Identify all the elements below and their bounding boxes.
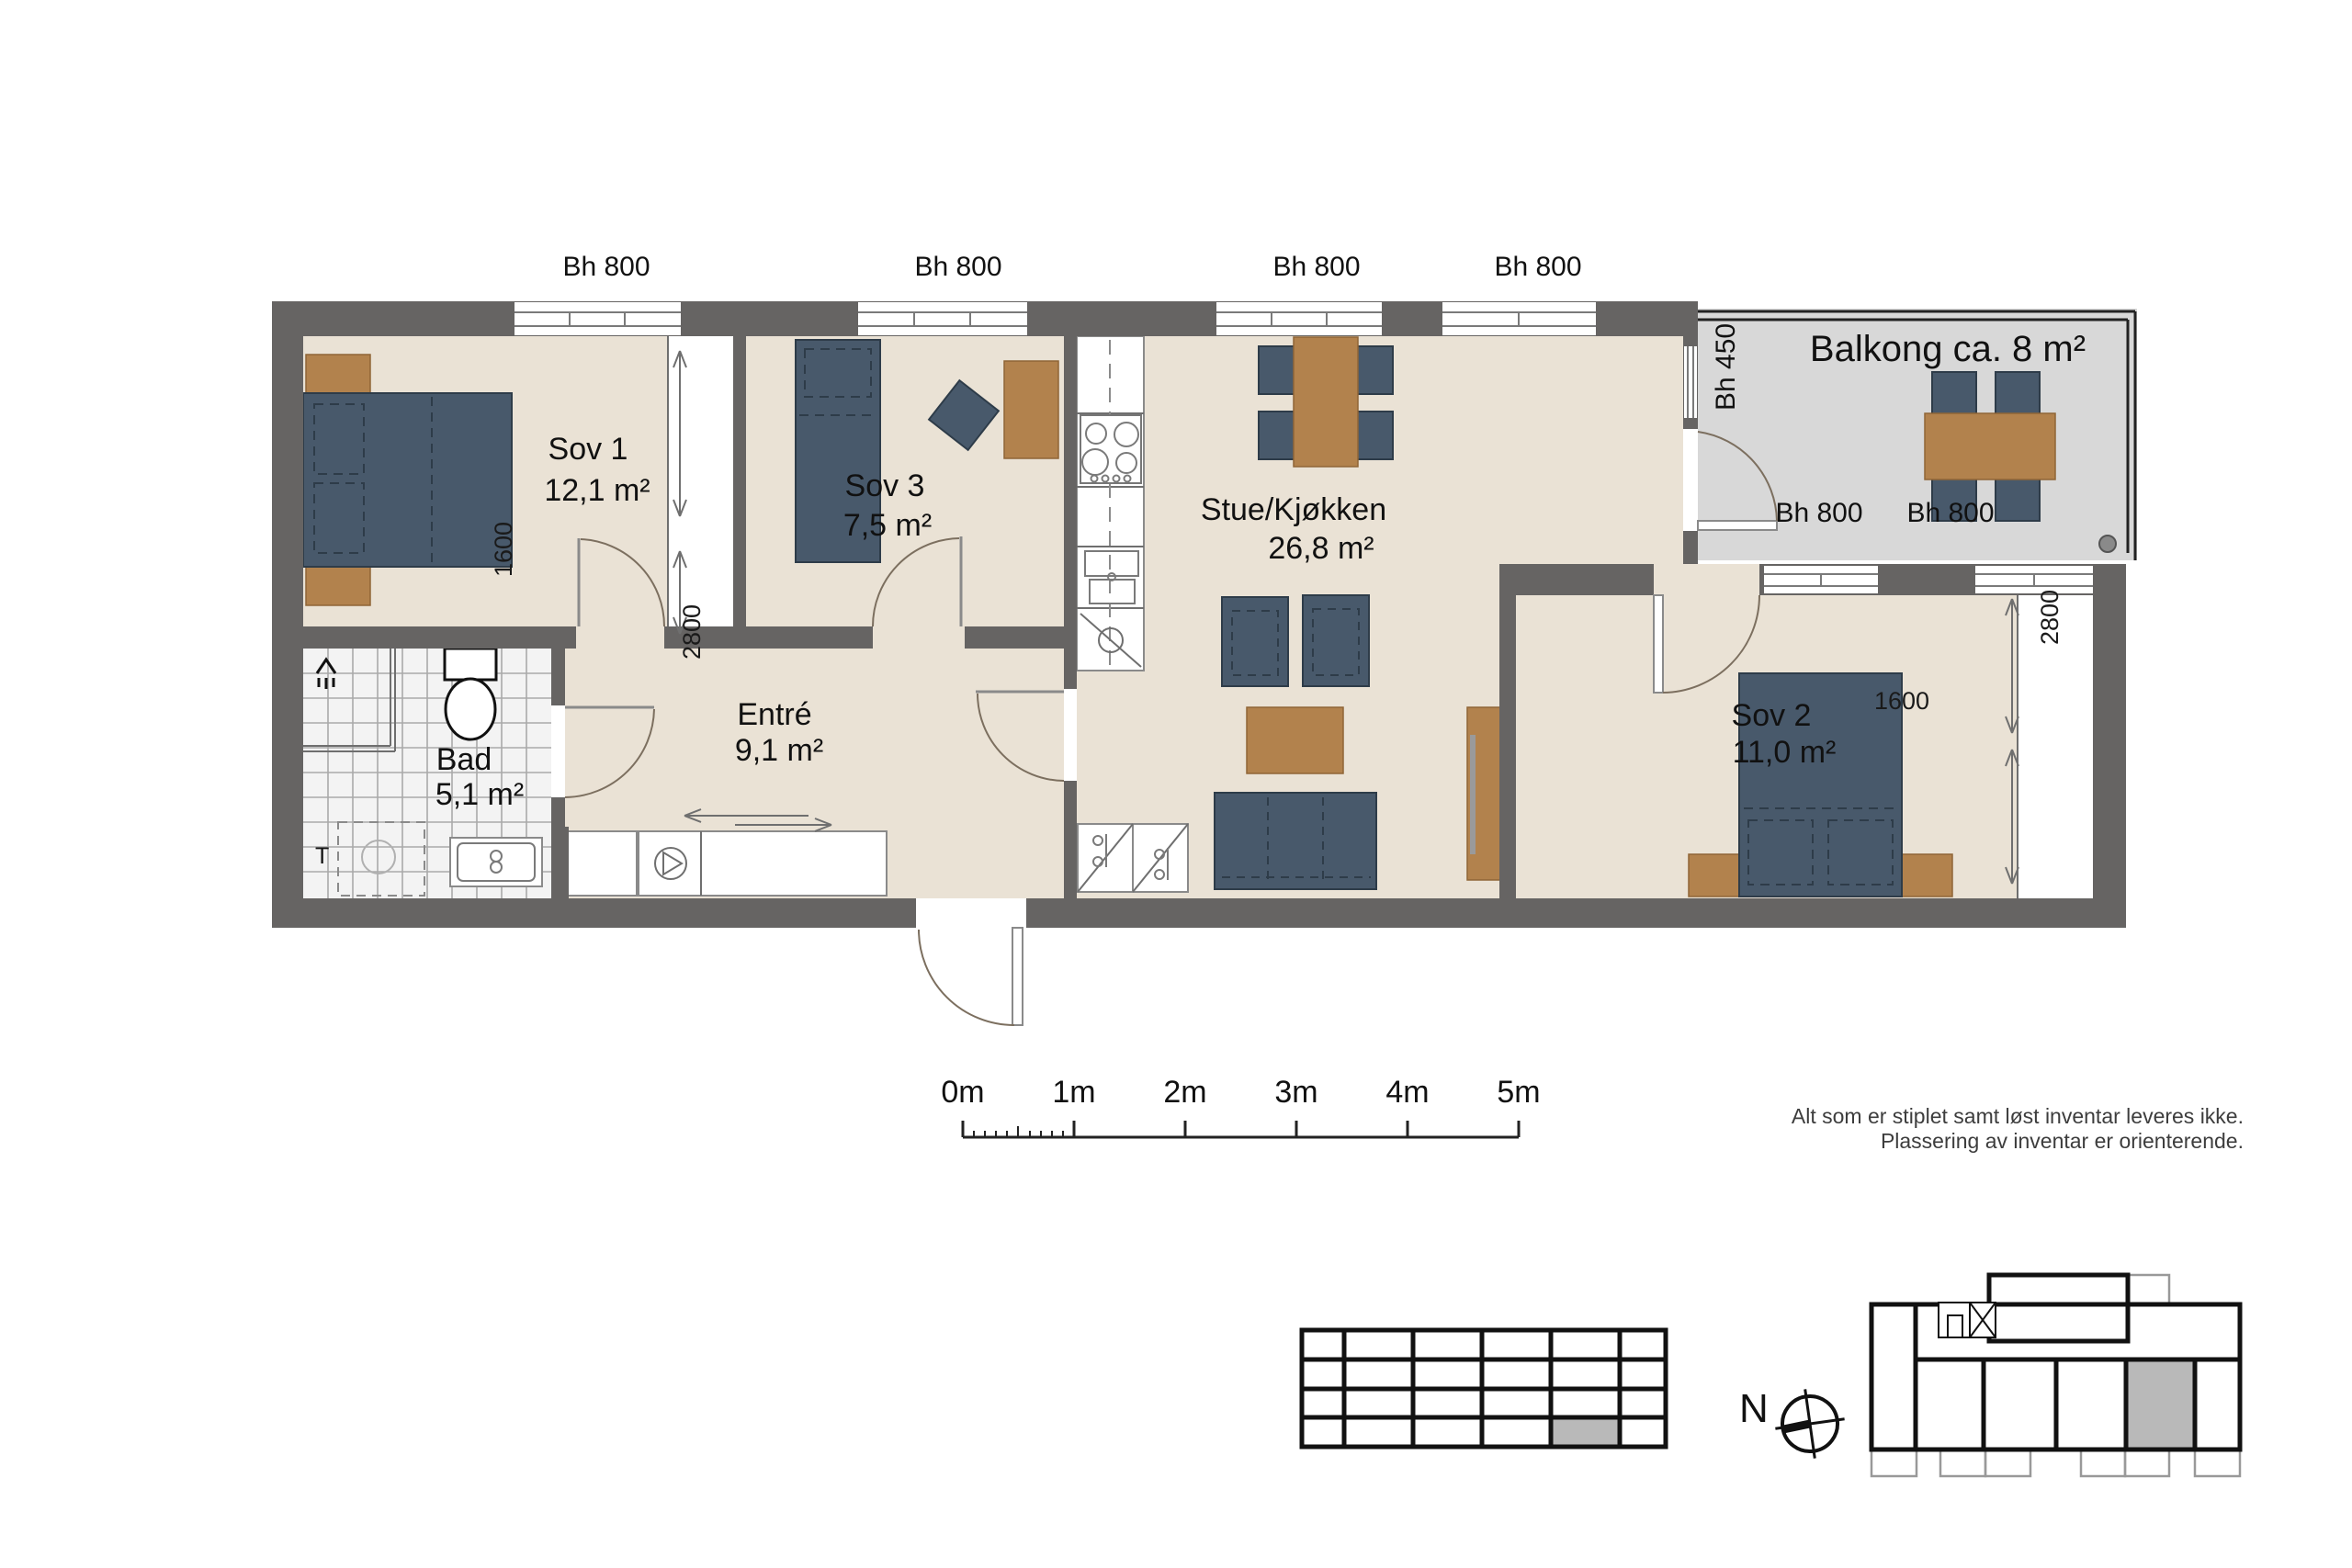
sov3-name: Sov 3 <box>845 468 925 503</box>
compass: N <box>1739 1384 1849 1463</box>
window-balcony-divider <box>1684 346 1697 418</box>
stove-icon <box>1080 415 1141 483</box>
dining-chair <box>1259 412 1295 459</box>
window-top-1 <box>514 302 681 335</box>
sov3-area: 7,5 m² <box>843 508 932 543</box>
north-label: N <box>1739 1386 1769 1431</box>
tech-cabinets <box>1078 824 1188 892</box>
scale-2m: 2m <box>1163 1075 1206 1110</box>
sov2-name: Sov 2 <box>1732 698 1812 733</box>
dining-table <box>1294 337 1358 467</box>
bad-name: Bad <box>436 742 492 777</box>
bh800-label-1: Bh 800 <box>562 252 650 282</box>
balcony-chair <box>1996 372 2040 414</box>
bh800-label-3: Bh 800 <box>1272 252 1360 282</box>
bad-area: 5,1 m² <box>435 777 524 812</box>
entre-name: Entré <box>737 697 811 732</box>
bath-t-label: T <box>315 843 329 869</box>
bathroom-sink-icon <box>450 838 542 886</box>
key-plan <box>1871 1275 2240 1476</box>
kitchen-counter <box>1077 336 1144 671</box>
scale-4m: 4m <box>1385 1075 1429 1110</box>
scale-0m: 0m <box>941 1075 984 1110</box>
balcony-table <box>1925 413 2055 479</box>
sov1-bed <box>303 393 512 567</box>
stue-name: Stue/Kjøkken <box>1201 492 1386 527</box>
toilet-icon <box>445 649 496 739</box>
window-sov2-1 <box>1764 566 1878 593</box>
bh800-label-balcony-2: Bh 800 <box>1906 498 1994 528</box>
key-plan-core <box>1939 1303 1996 1337</box>
sov2-area: 11,0 m² <box>1733 735 1837 770</box>
nightstand <box>1902 854 1952 897</box>
sov1-name: Sov 1 <box>548 432 628 467</box>
window-top-3 <box>1216 302 1382 335</box>
stue-area: 26,8 m² <box>1268 531 1374 566</box>
disclaimer-notes: Alt som er stiplet samt løst inventar le… <box>1792 1104 2244 1153</box>
bh800-label-4: Bh 800 <box>1494 252 1581 282</box>
window-top-4 <box>1442 302 1596 335</box>
scale-1m: 1m <box>1052 1075 1095 1110</box>
bh800-label-2: Bh 800 <box>914 252 1001 282</box>
key-plan-unit-highlight <box>2126 1359 2195 1450</box>
note-line-2: Plassering av inventar er orienterende. <box>1881 1129 2244 1153</box>
scale-bar: 0m 1m 2m 3m 4m 5m <box>941 1075 1540 1137</box>
scale-5m: 5m <box>1497 1075 1540 1110</box>
nightstand <box>306 355 370 393</box>
sov3-desk <box>1004 361 1058 458</box>
dining-chair <box>1356 412 1393 459</box>
balcony-label: Balkong ca. 8 m² <box>1810 329 2086 369</box>
position-grid-highlight <box>1551 1417 1620 1447</box>
scale-3m: 3m <box>1274 1075 1317 1110</box>
window-sov2-2 <box>1975 566 2093 593</box>
note-line-1: Alt som er stiplet samt løst inventar le… <box>1792 1104 2244 1128</box>
dining-chair <box>1259 346 1295 394</box>
window-top-2 <box>858 302 1027 335</box>
floor-plan-canvas: Bh 800 Bh 800 Bh 800 Bh 800 Bh 450 Bh 80… <box>0 0 2352 1568</box>
entrance-door <box>916 898 1026 1025</box>
scale-minor-ticks <box>974 1126 1063 1137</box>
balcony-drain <box>2099 536 2116 552</box>
coffee-table <box>1247 707 1343 773</box>
dining-chair <box>1356 346 1393 394</box>
position-grid <box>1302 1330 1666 1447</box>
sov2-bed-width: 1600 <box>1874 687 1929 715</box>
nightstand <box>1689 854 1739 897</box>
balcony-chair <box>1932 372 1976 414</box>
sov1-room-depth: 2800 <box>678 604 706 660</box>
sov2-room-depth: 2800 <box>2036 590 2064 645</box>
entre-area: 9,1 m² <box>735 733 823 768</box>
nightstand <box>306 567 370 605</box>
bh450-label: Bh 450 <box>1711 323 1741 411</box>
balcony-chair <box>1996 479 2040 521</box>
sov1-area: 12,1 m² <box>544 473 650 508</box>
sov1-wardrobe-strip <box>668 336 733 626</box>
sov1-bed-width: 1600 <box>490 522 517 577</box>
bh800-label-balcony-1: Bh 800 <box>1775 498 1862 528</box>
sofa <box>1215 793 1376 889</box>
